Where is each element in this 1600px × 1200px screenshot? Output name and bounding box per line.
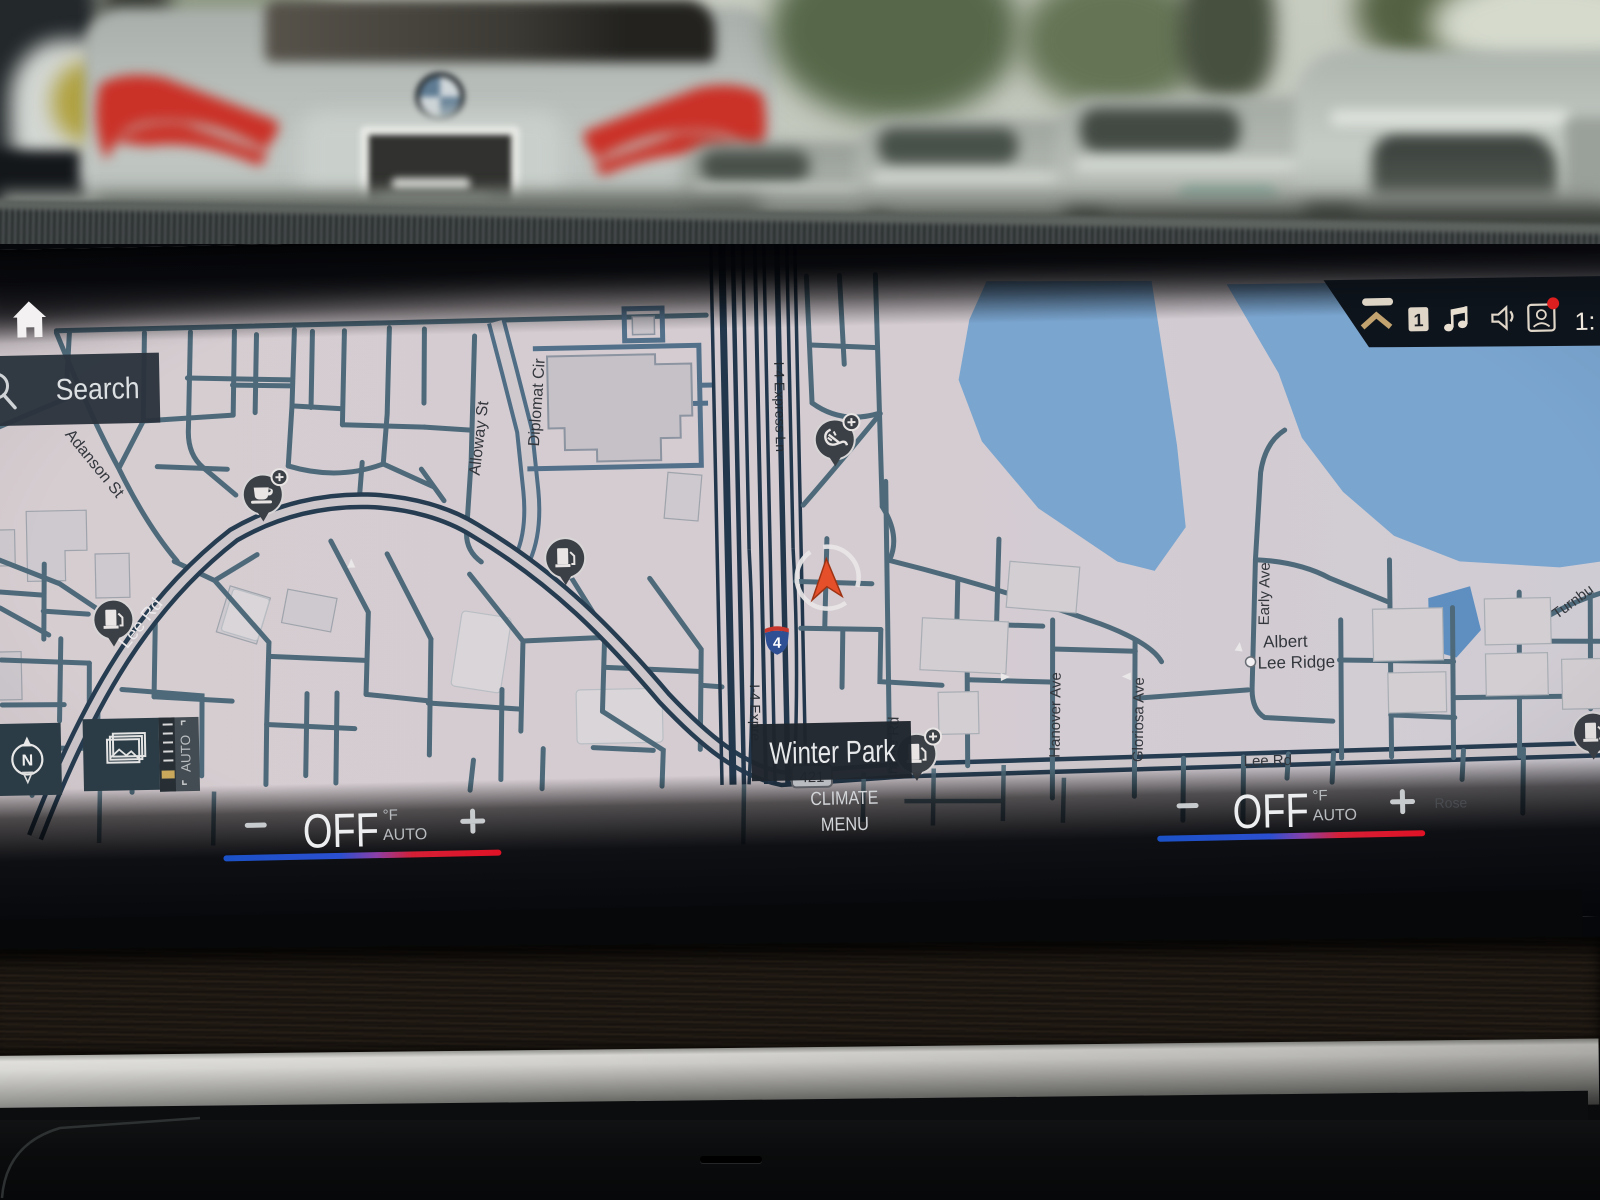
svg-text:Search: Search — [55, 372, 140, 407]
svg-text:CLIMATE: CLIMATE — [810, 788, 878, 810]
svg-text:AUTO: AUTO — [178, 735, 194, 773]
svg-text:1: 1 — [1413, 310, 1423, 330]
svg-text:OFF: OFF — [1232, 785, 1309, 840]
svg-text:°F: °F — [1312, 787, 1328, 804]
svg-text:1:: 1: — [1574, 308, 1595, 336]
svg-text:Rose: Rose — [1434, 794, 1467, 811]
svg-text:MENU: MENU — [821, 814, 869, 836]
svg-text:N: N — [21, 752, 33, 769]
svg-text:AUTO: AUTO — [383, 826, 428, 844]
svg-text:Winter Park: Winter Park — [769, 733, 896, 771]
svg-text:OFF: OFF — [302, 804, 379, 859]
svg-text:AUTO: AUTO — [1313, 807, 1358, 825]
svg-text:°F: °F — [382, 807, 398, 824]
